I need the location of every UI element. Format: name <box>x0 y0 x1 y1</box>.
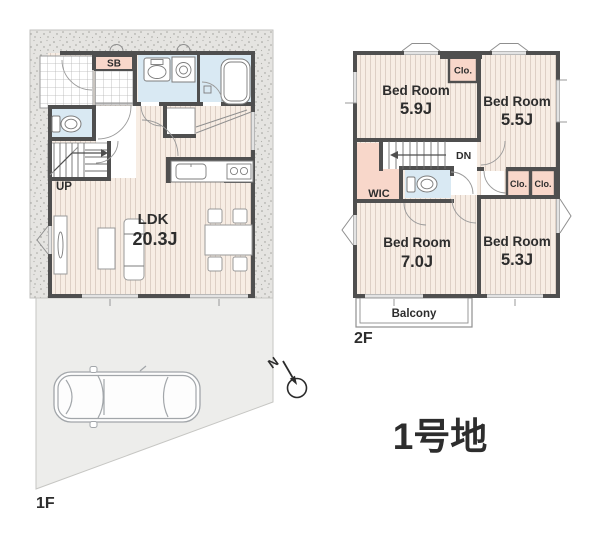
closet-mid-right-label: Clo. <box>535 179 552 189</box>
floor2-label: 2F <box>354 330 373 347</box>
stairs-down-label: DN <box>456 150 471 162</box>
closet-top-label: Clo. <box>454 66 472 77</box>
floor-plan-canvas: SB UP LDK 20.3J 1F <box>0 0 600 541</box>
toilet-icon-1f <box>52 116 81 132</box>
bedroom-53-name: Bed Room <box>483 234 551 249</box>
entrance-porch <box>40 56 93 108</box>
casement-window-mark <box>342 215 353 245</box>
lot-title: 1号地 <box>393 416 488 457</box>
balcony-label: Balcony <box>392 308 437 320</box>
genkan <box>95 70 133 105</box>
tv-board <box>54 216 67 274</box>
ldk-size: 20.3J <box>132 229 177 249</box>
casement-window-mark <box>560 199 571 233</box>
ldk-name: LDK <box>138 211 169 228</box>
coffee-table <box>98 228 115 269</box>
closet-mid-left-label: Clo. <box>510 179 527 189</box>
washbasin-icon <box>144 58 170 81</box>
bedroom-55-name: Bed Room <box>483 94 551 109</box>
bedroom-70-name: Bed Room <box>383 235 451 250</box>
stairs-up-label: UP <box>56 181 72 193</box>
wic-label: WIC <box>368 188 389 200</box>
floor1-label: 1F <box>36 495 55 512</box>
shoe-box-label: SB <box>107 59 121 70</box>
washing-machine-icon <box>172 57 195 82</box>
storage-void <box>166 108 195 135</box>
car-top-view-icon <box>54 366 200 428</box>
house-2f: Bed Room 5.9J Bed Room 5.5J Bed Room 7.0… <box>342 44 571 328</box>
floor-plan-page: SB UP LDK 20.3J 1F <box>0 0 600 541</box>
kitchen-counter <box>171 161 253 182</box>
bedroom-70-size: 7.0J <box>401 253 433 271</box>
bay-window-mark <box>402 44 440 52</box>
house-1f: SB UP LDK 20.3J <box>37 45 255 307</box>
bedroom-55-size: 5.5J <box>501 111 533 129</box>
bedroom-59-size: 5.9J <box>400 100 432 118</box>
toilet-icon-2f <box>407 176 437 192</box>
bedroom-59-name: Bed Room <box>382 83 450 98</box>
stairs-1f <box>48 143 109 178</box>
bedroom-53-size: 5.3J <box>501 251 533 269</box>
bay-window-mark <box>490 44 528 52</box>
